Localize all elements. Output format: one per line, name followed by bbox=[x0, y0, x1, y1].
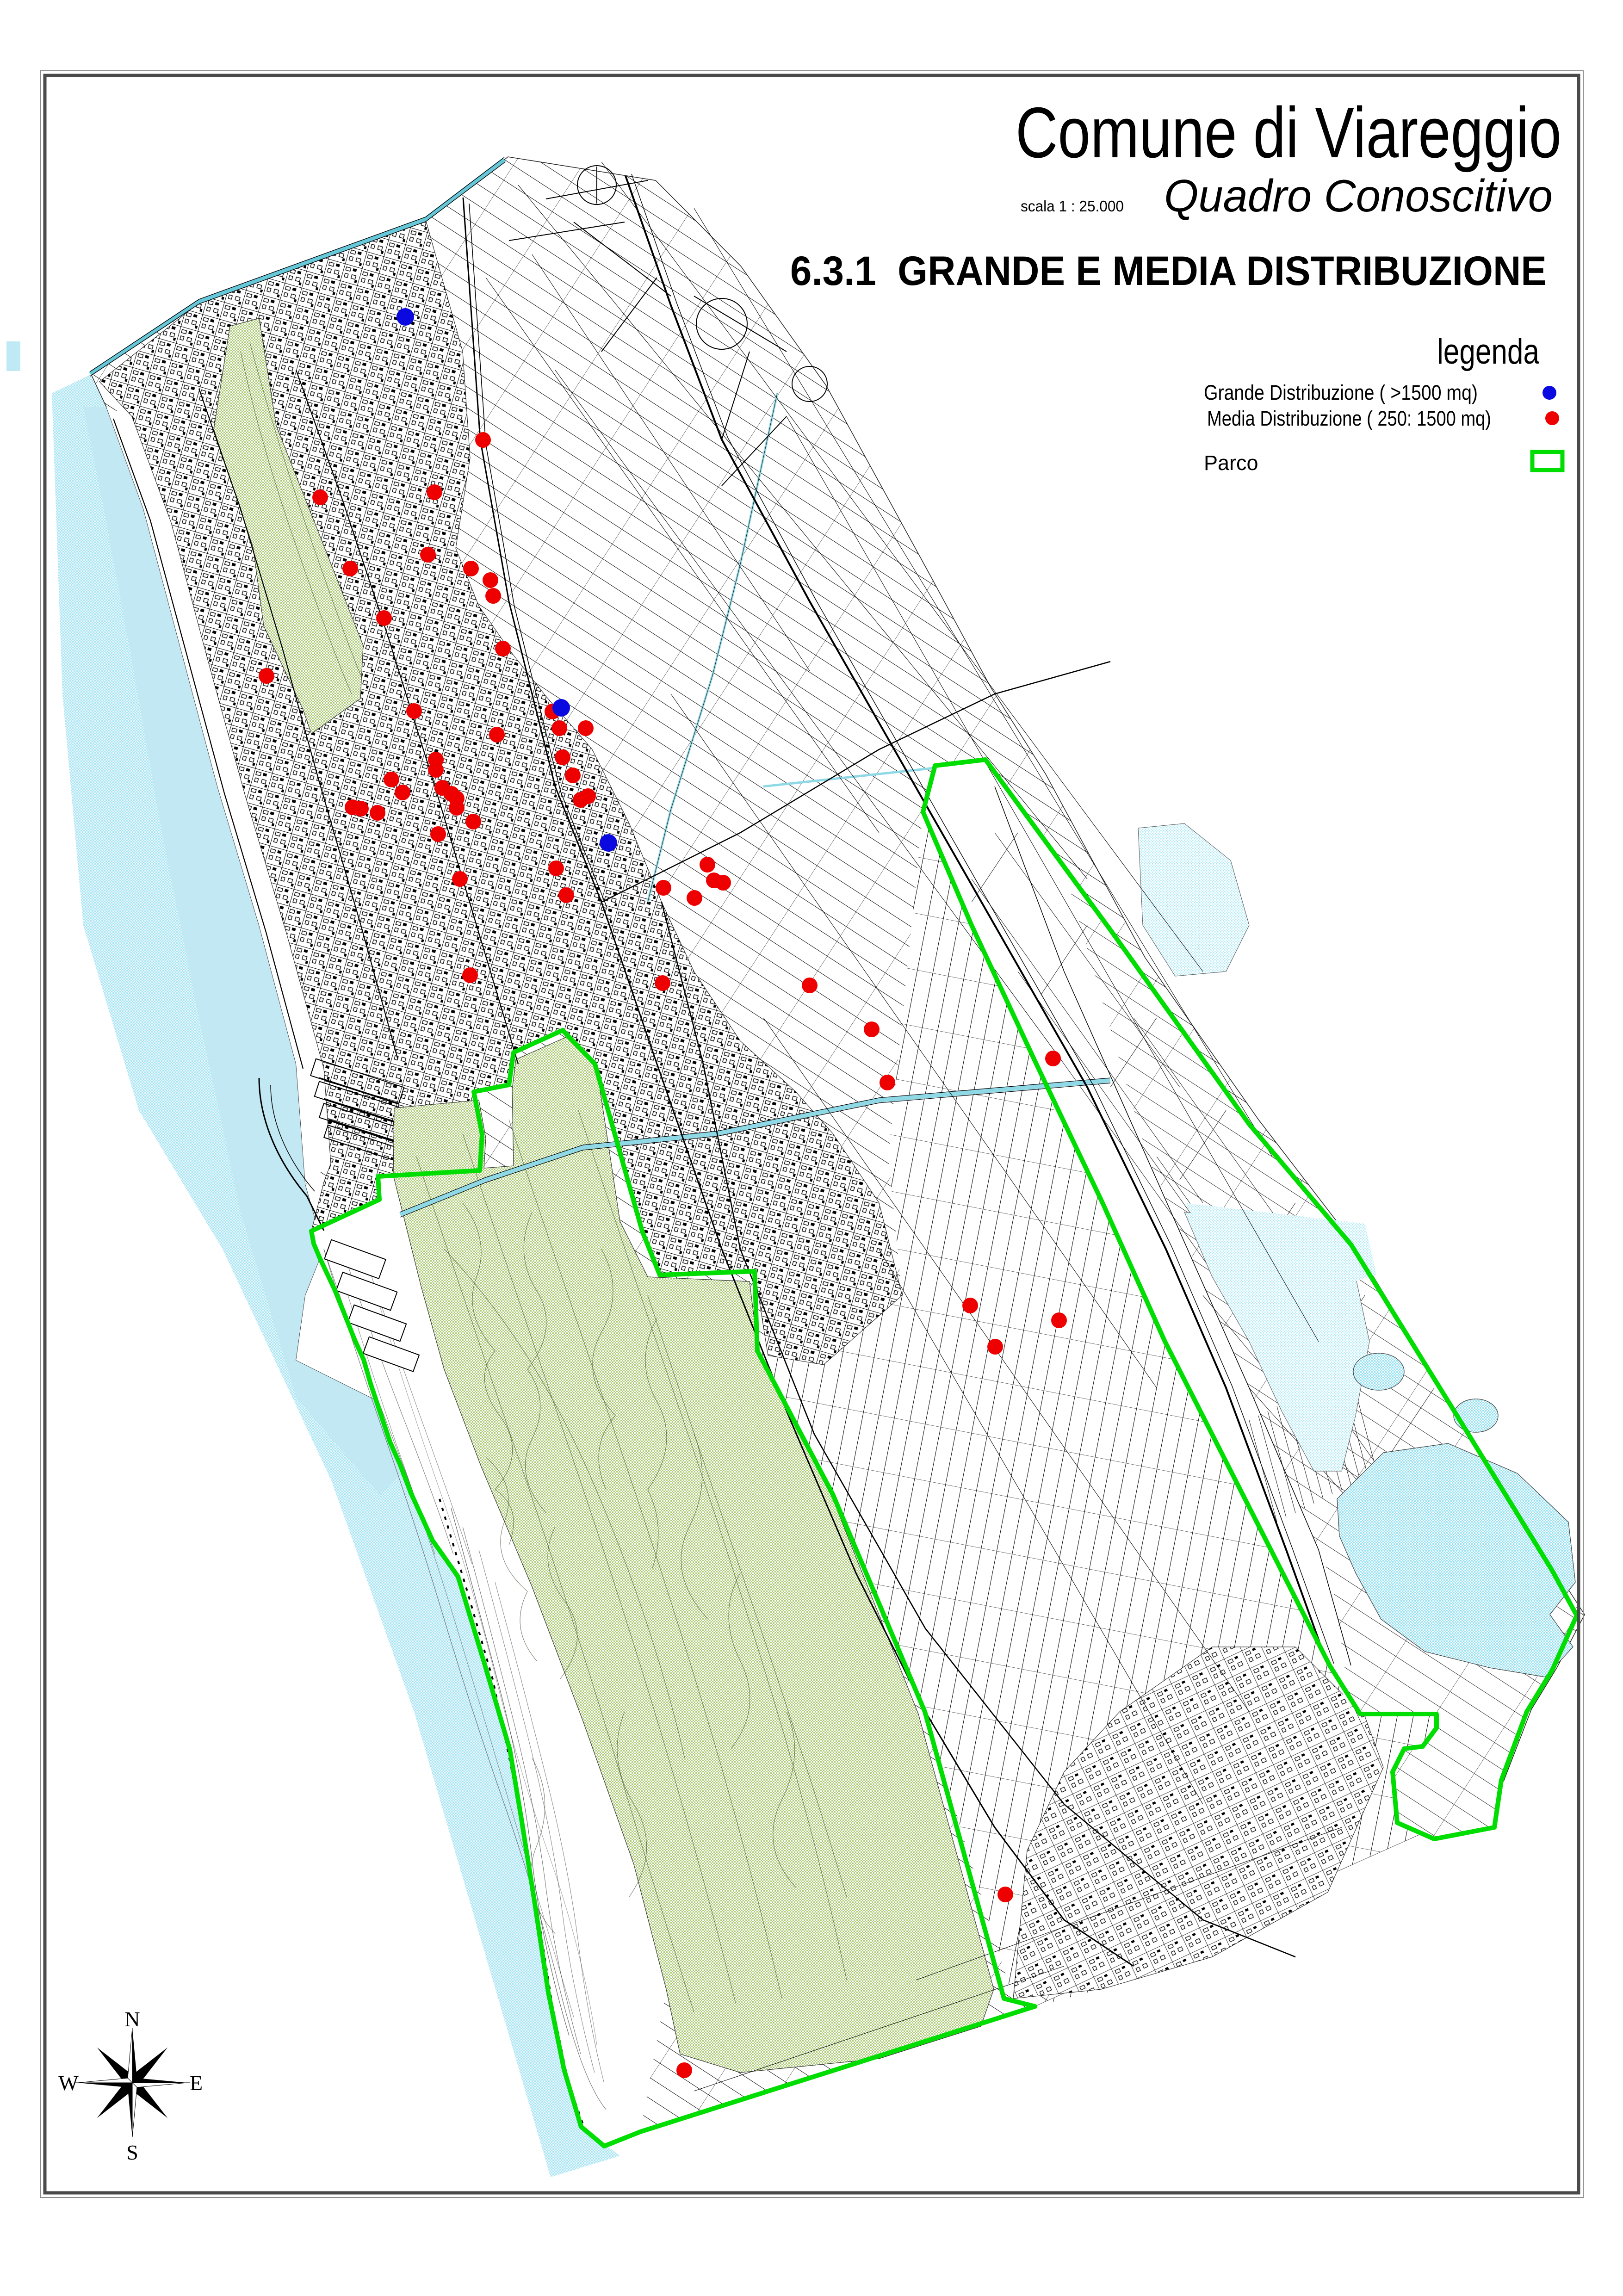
svg-text:E: E bbox=[190, 2071, 203, 2095]
svg-text:Media Distribuzione ( 250: 150: Media Distribuzione ( 250: 1500 mq) bbox=[1207, 407, 1491, 430]
svg-text:Quadro Conoscitivo: Quadro Conoscitivo bbox=[1164, 170, 1553, 221]
svg-text:N: N bbox=[124, 2007, 140, 2031]
svg-text:6.3.1 GRANDE E MEDIA DISTRIBU: 6.3.1 GRANDE E MEDIA DISTRIBUZIONE bbox=[790, 248, 1547, 294]
svg-text:S: S bbox=[126, 2141, 138, 2164]
svg-text:Parco: Parco bbox=[1204, 451, 1258, 475]
svg-text:Grande Distribuzione ( >1500 m: Grande Distribuzione ( >1500 mq) bbox=[1204, 381, 1478, 404]
svg-text:Comune di Viareggio: Comune di Viareggio bbox=[1016, 93, 1561, 173]
svg-text:legenda: legenda bbox=[1437, 332, 1540, 371]
svg-text:scala 1 : 25.000: scala 1 : 25.000 bbox=[1021, 198, 1124, 215]
svg-text:W: W bbox=[58, 2071, 79, 2095]
